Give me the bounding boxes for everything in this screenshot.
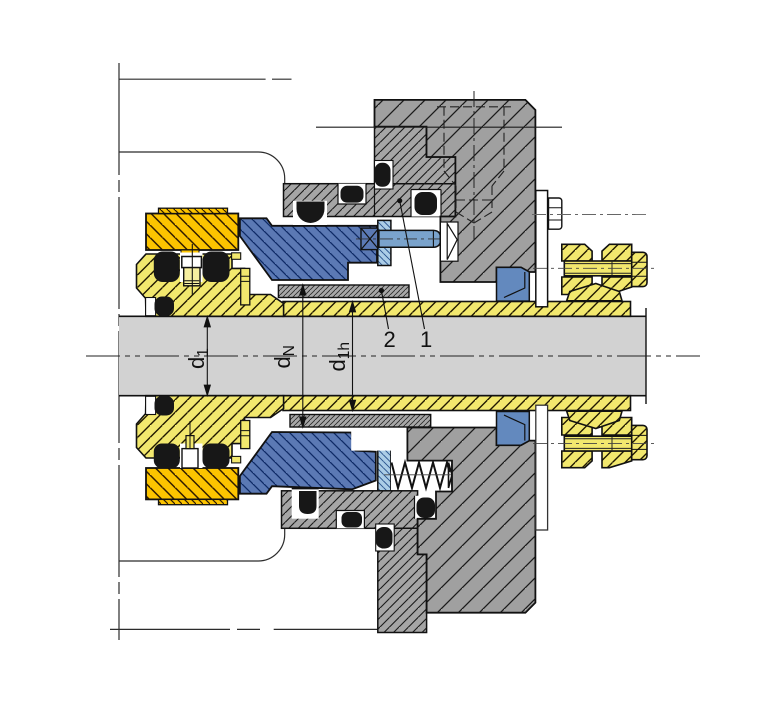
svg-text:1: 1 xyxy=(420,327,432,352)
svg-text:2: 2 xyxy=(384,327,396,352)
